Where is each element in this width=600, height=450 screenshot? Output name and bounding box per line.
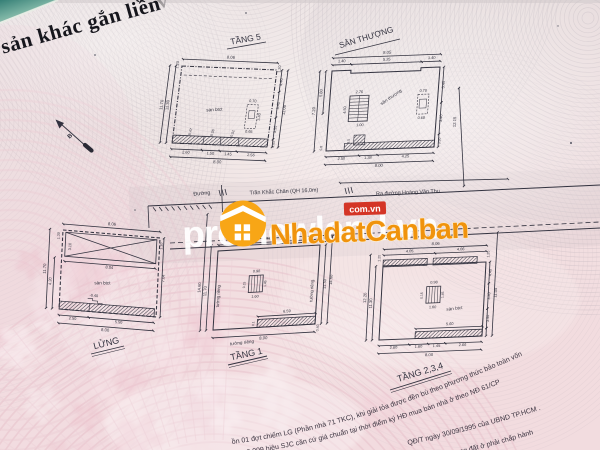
svg-text:7.20: 7.20 xyxy=(311,106,317,115)
svg-text:8.00: 8.00 xyxy=(213,159,222,164)
svg-text:1.45: 1.45 xyxy=(433,344,441,348)
svg-text:1.40: 1.40 xyxy=(428,55,436,60)
svg-text:sàn btct: sàn btct xyxy=(206,107,223,113)
svg-text:5.25: 5.25 xyxy=(383,56,391,61)
svg-text:2.50: 2.50 xyxy=(337,156,345,161)
svg-text:3.40: 3.40 xyxy=(487,292,491,299)
svg-text:1.00: 1.00 xyxy=(356,123,364,127)
svg-text:14.60: 14.60 xyxy=(196,282,202,293)
svg-text:3.50: 3.50 xyxy=(437,137,442,144)
svg-text:8.00: 8.00 xyxy=(375,163,384,168)
svg-text:8.00: 8.00 xyxy=(101,327,110,333)
svg-text:8.00: 8.00 xyxy=(259,335,268,340)
svg-text:1.20: 1.20 xyxy=(377,255,381,262)
svg-text:12.20: 12.20 xyxy=(362,292,368,303)
svg-text:1.45: 1.45 xyxy=(263,280,267,287)
svg-text:8.05: 8.05 xyxy=(383,50,392,55)
svg-text:2.50: 2.50 xyxy=(69,315,78,321)
svg-text:1.38: 1.38 xyxy=(364,155,372,160)
svg-text:1.60: 1.60 xyxy=(415,345,423,349)
svg-text:8.00: 8.00 xyxy=(425,352,434,357)
svg-text:5.40: 5.40 xyxy=(440,81,446,89)
svg-text:11.70: 11.70 xyxy=(42,263,48,274)
svg-text:0.15: 0.15 xyxy=(420,292,424,299)
svg-text:1.30: 1.30 xyxy=(57,232,61,239)
svg-text:0.8: 0.8 xyxy=(319,146,323,151)
svg-text:4.06: 4.06 xyxy=(457,247,465,251)
svg-text:8.06: 8.06 xyxy=(108,221,117,227)
svg-text:0.98: 0.98 xyxy=(253,269,261,273)
svg-text:sàn btct: sàn btct xyxy=(94,280,111,285)
svg-text:3.10: 3.10 xyxy=(68,243,72,251)
svg-text:11.30: 11.30 xyxy=(322,278,328,289)
svg-text:8.04: 8.04 xyxy=(105,264,114,270)
svg-text:14.60: 14.60 xyxy=(328,274,334,285)
svg-text:3.50: 3.50 xyxy=(486,315,490,322)
svg-text:7.04: 7.04 xyxy=(160,274,165,283)
svg-text:1.40: 1.40 xyxy=(338,58,346,63)
svg-text:3.40: 3.40 xyxy=(275,102,281,110)
svg-text:5.50: 5.50 xyxy=(115,319,124,325)
svg-text:8.06: 8.06 xyxy=(227,54,236,59)
svg-text:4.50: 4.50 xyxy=(343,106,348,113)
svg-text:4.25: 4.25 xyxy=(401,153,409,158)
svg-text:0.65: 0.65 xyxy=(245,130,253,134)
svg-text:4.20: 4.20 xyxy=(47,276,52,285)
svg-text:0.15: 0.15 xyxy=(242,281,246,288)
svg-text:12.15: 12.15 xyxy=(452,116,458,127)
svg-text:0.68: 0.68 xyxy=(417,116,425,120)
svg-text:11.05: 11.05 xyxy=(492,287,498,298)
svg-text:0.70: 0.70 xyxy=(249,99,257,103)
svg-text:2.56: 2.56 xyxy=(247,152,255,157)
svg-text:-0.40: -0.40 xyxy=(89,293,98,298)
svg-text:1.60: 1.60 xyxy=(429,305,437,309)
svg-text:1.45: 1.45 xyxy=(224,151,232,156)
svg-text:4.05: 4.05 xyxy=(406,249,414,253)
svg-text:0.1: 0.1 xyxy=(251,321,255,326)
svg-text:1.45: 1.45 xyxy=(441,291,445,298)
svg-text:2.76: 2.76 xyxy=(355,89,363,94)
svg-text:0.65: 0.65 xyxy=(271,141,276,148)
svg-text:0.40: 0.40 xyxy=(316,324,320,331)
svg-text:2.60: 2.60 xyxy=(182,149,190,154)
svg-text:2.66: 2.66 xyxy=(459,343,467,347)
svg-text:com.vn: com.vn xyxy=(349,203,381,214)
svg-text:4.40: 4.40 xyxy=(488,269,492,276)
svg-text:3.40: 3.40 xyxy=(438,114,444,122)
svg-text:1.20: 1.20 xyxy=(486,251,490,258)
svg-text:5.60: 5.60 xyxy=(446,322,454,326)
svg-text:6.59: 6.59 xyxy=(283,308,291,313)
svg-text:0.70: 0.70 xyxy=(419,89,427,93)
svg-text:1.60: 1.60 xyxy=(251,294,259,298)
svg-text:0.98: 0.98 xyxy=(430,280,438,284)
svg-text:3.50: 3.50 xyxy=(272,126,278,134)
svg-text:4.40: 4.40 xyxy=(278,78,284,86)
svg-text:1.50: 1.50 xyxy=(206,150,214,155)
svg-text:2.60: 2.60 xyxy=(390,346,398,350)
